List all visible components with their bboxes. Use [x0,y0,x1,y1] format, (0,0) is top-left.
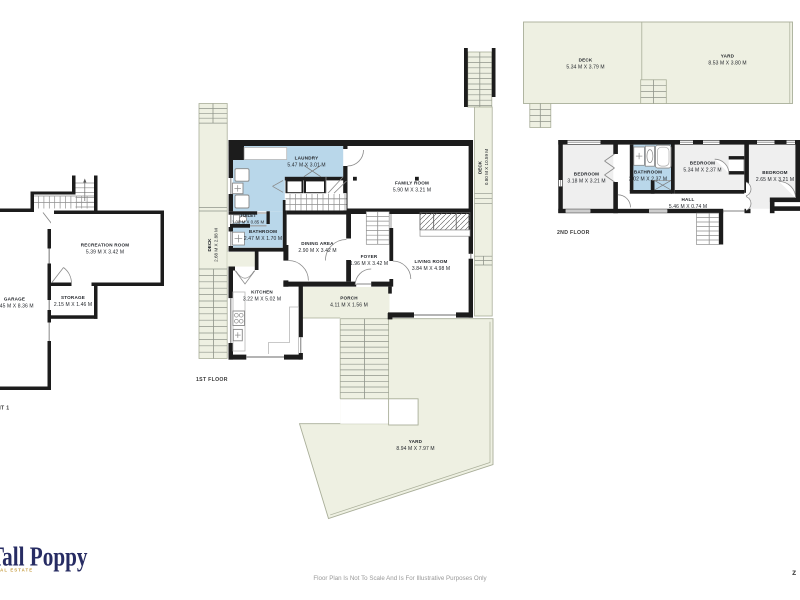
svg-text:8.53 M X 3.80 M: 8.53 M X 3.80 M [708,61,746,67]
svg-text:1.08 M X 0.85 M: 1.08 M X 0.85 M [232,220,265,225]
svg-text:FOYER: FOYER [361,254,378,259]
svg-text:DECK: DECK [579,58,593,63]
svg-text:FAMILY ROOM: FAMILY ROOM [395,180,429,185]
svg-text:5.90 M X 3.21 M: 5.90 M X 3.21 M [393,187,431,193]
svg-text:3.84 M X 4.98 M: 3.84 M X 4.98 M [412,266,450,272]
svg-text:LAUNDRY: LAUNDRY [295,156,319,161]
svg-text:BATHROOM: BATHROOM [634,170,662,175]
svg-text:8.94 M X 7.97 M: 8.94 M X 7.97 M [396,446,434,452]
svg-text:DECK: DECK [478,160,483,174]
svg-text:KITCHEN: KITCHEN [251,290,273,295]
svg-text:BEDROOM: BEDROOM [762,170,787,175]
svg-text:1.96 M X 3.42 M: 1.96 M X 3.42 M [350,261,388,267]
svg-text:2.90 M X 3.42 M: 2.90 M X 3.42 M [298,248,336,254]
svg-text:5.34 M X 2.37 M: 5.34 M X 2.37 M [683,168,721,174]
svg-text:DECK: DECK [207,238,212,252]
svg-text:YARD: YARD [409,439,423,444]
svg-text:LIVING ROOM: LIVING ROOM [414,259,447,264]
svg-text:BEDROOM: BEDROOM [690,161,715,166]
svg-text:5.39 M X 3.42 M: 5.39 M X 3.42 M [86,250,124,256]
svg-text:RECREATION ROOM: RECREATION ROOM [81,243,130,248]
svg-text:4.11 M X 1.56 M: 4.11 M X 1.56 M [330,302,368,308]
svg-text:3.22 M X 5.02 M: 3.22 M X 5.02 M [243,297,281,303]
svg-text:TOILET: TOILET [240,213,256,218]
svg-text:5.47 M X 3.01 M: 5.47 M X 3.01 M [287,163,325,169]
svg-text:3.18 M X 3.21 M: 3.18 M X 3.21 M [567,179,605,185]
svg-text:5.34 M X 3.79 M: 5.34 M X 3.79 M [566,65,604,71]
svg-text:z: z [792,567,796,577]
svg-text:HALL: HALL [681,197,694,202]
svg-text:2.68 M X 2.88 M: 2.68 M X 2.88 M [214,228,219,262]
svg-text:2ND FLOOR: 2ND FLOOR [557,230,590,236]
svg-text:2.65 M X 3.21 M: 2.65 M X 3.21 M [756,177,794,183]
svg-text:DINING AREA: DINING AREA [301,241,334,246]
svg-text:Floor Plan Is Not To Scale And: Floor Plan Is Not To Scale And Is For Il… [313,575,487,582]
svg-text:BATHROOM: BATHROOM [249,229,277,234]
svg-text:BASEMENT 1: BASEMENT 1 [0,406,9,412]
svg-text:2.02 M X 2.37 M: 2.02 M X 2.37 M [629,177,667,183]
svg-text:PORCH: PORCH [340,295,358,300]
svg-text:2.47 M X 1.70 M: 2.47 M X 1.70 M [244,236,282,242]
svg-text:STORAGE: STORAGE [61,295,85,300]
svg-text:1ST FLOOR: 1ST FLOOR [196,377,228,383]
svg-text:BEDROOM: BEDROOM [574,172,599,177]
svg-text:2.45 M X 8.36 M: 2.45 M X 8.36 M [0,304,34,310]
svg-text:YARD: YARD [721,54,735,59]
svg-text:2.15 M X 1.46 M: 2.15 M X 1.46 M [54,302,92,308]
svg-text:5.46 M X 0.74 M: 5.46 M X 0.74 M [669,204,707,210]
svg-text:REAL ESTATE: REAL ESTATE [0,568,33,573]
svg-text:GARAGE: GARAGE [4,297,25,302]
svg-text:0.80 M X 10.59 M: 0.80 M X 10.59 M [484,149,489,185]
